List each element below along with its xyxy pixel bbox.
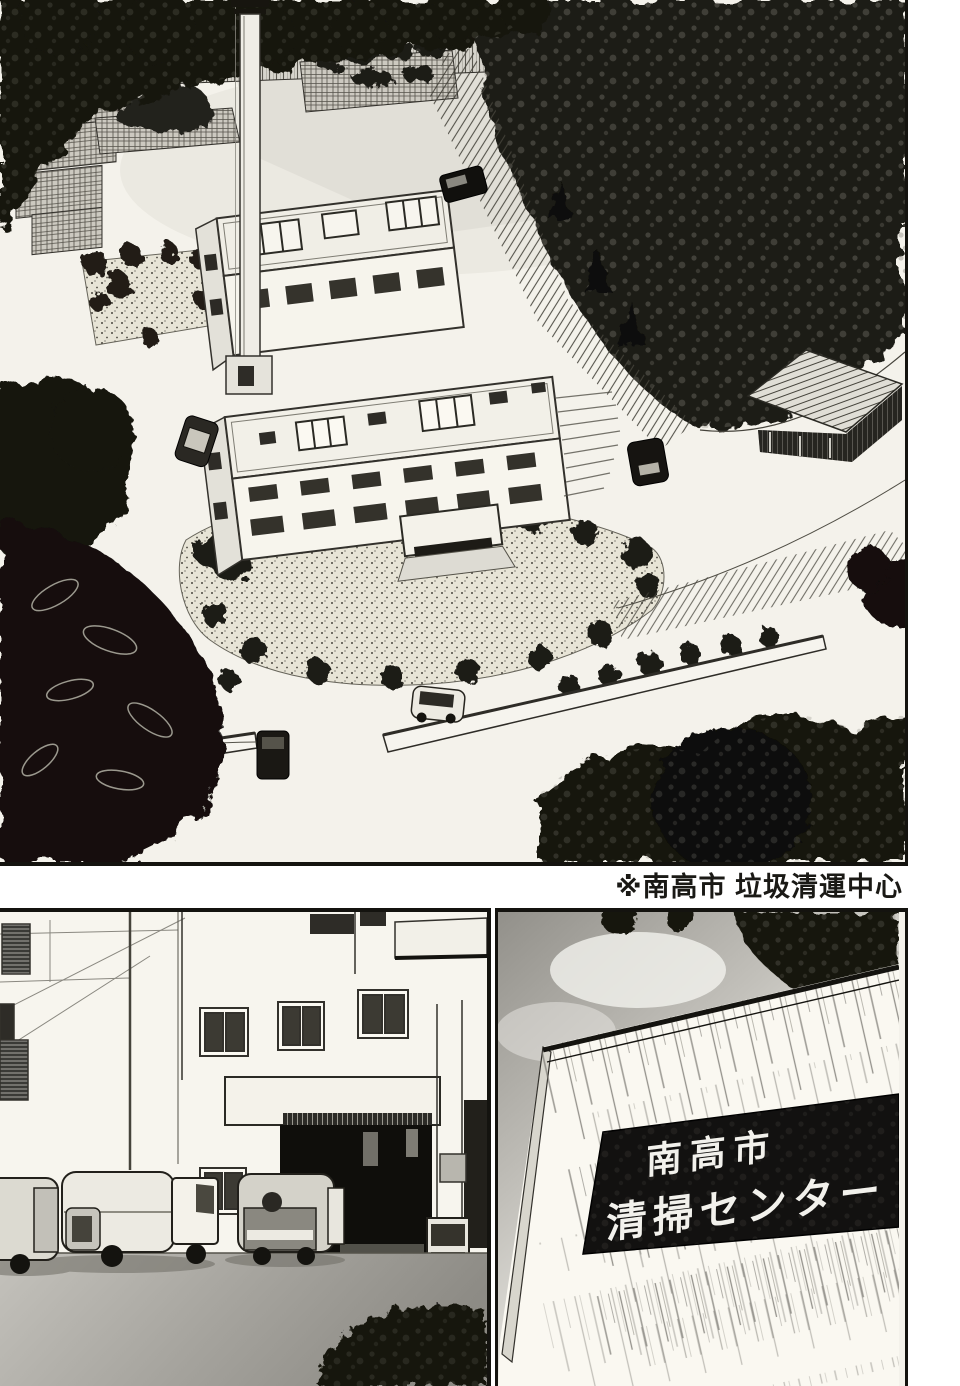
control-box	[440, 1154, 466, 1182]
garage-canopy	[225, 1077, 440, 1127]
panel-aerial-view	[0, 0, 908, 866]
entrance-canopy	[390, 503, 515, 581]
trucks-art	[0, 912, 487, 1386]
manga-page: ※南高市 垃圾清運中心	[0, 0, 960, 1386]
sign-art: 南高市 清掃センター	[498, 912, 899, 1386]
garbage-truck-main	[62, 1172, 218, 1267]
panel-wall-sign: 南高市 清掃センター	[495, 908, 908, 1386]
aerial-art	[0, 0, 905, 862]
vehicle-van-bottom	[257, 731, 289, 779]
roof-ledge	[395, 918, 487, 958]
caption-strip: ※南高市 垃圾清運中心	[0, 866, 905, 908]
vehicle-car-right	[626, 437, 669, 487]
caption-text: ※南高市 垃圾清運中心	[615, 874, 905, 901]
vehicle-car-road	[410, 685, 465, 726]
panel-garbage-trucks	[0, 908, 491, 1386]
garbage-truck-left	[0, 1178, 58, 1274]
cloud	[550, 932, 726, 1008]
